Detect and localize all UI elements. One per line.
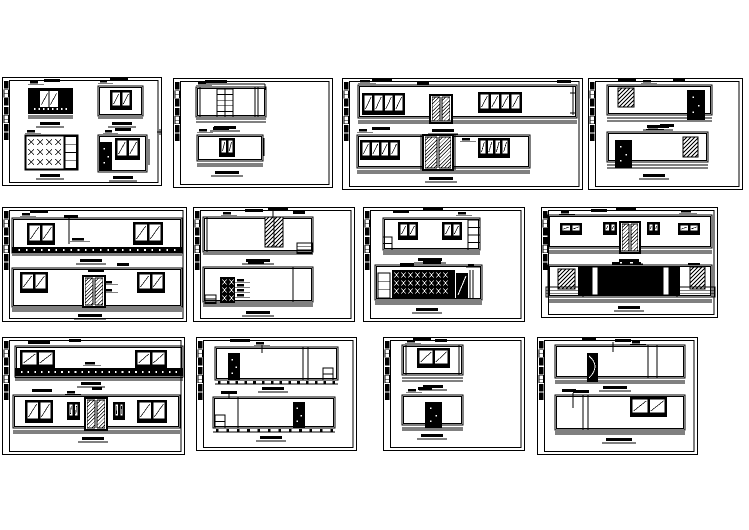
sheet-2: [173, 78, 333, 188]
sheet-5: [2, 207, 187, 322]
sheet-5-drawings: [12, 210, 182, 320]
sheet-6-drawings: [203, 207, 313, 317]
sheet-7-drawings: [375, 208, 482, 314]
sheet-3-drawings: [357, 78, 577, 183]
sheet-10: [196, 337, 357, 451]
sheet-8: [541, 207, 718, 318]
sheet-12: [537, 337, 698, 455]
sheet-4-drawings: [607, 78, 712, 180]
sheet-11-drawings: [402, 337, 463, 440]
sheet-10-drawings: [213, 339, 338, 442]
sheet-2-drawings: [196, 80, 266, 177]
sheet-7: [363, 207, 525, 322]
sheet-9: [2, 337, 185, 455]
sheet-6: [193, 207, 355, 322]
sheet-1: [2, 77, 162, 186]
sheet-3: [342, 78, 583, 190]
sheet-1-drawings: [25, 78, 162, 182]
sheet-8-drawings: [546, 207, 715, 312]
sheet-9-drawings: [13, 339, 183, 443]
cad-sheet-grid: [0, 0, 749, 530]
sheet-12-drawings: [555, 337, 685, 444]
sheet-11: [383, 337, 525, 451]
sheet-4: [588, 78, 743, 190]
